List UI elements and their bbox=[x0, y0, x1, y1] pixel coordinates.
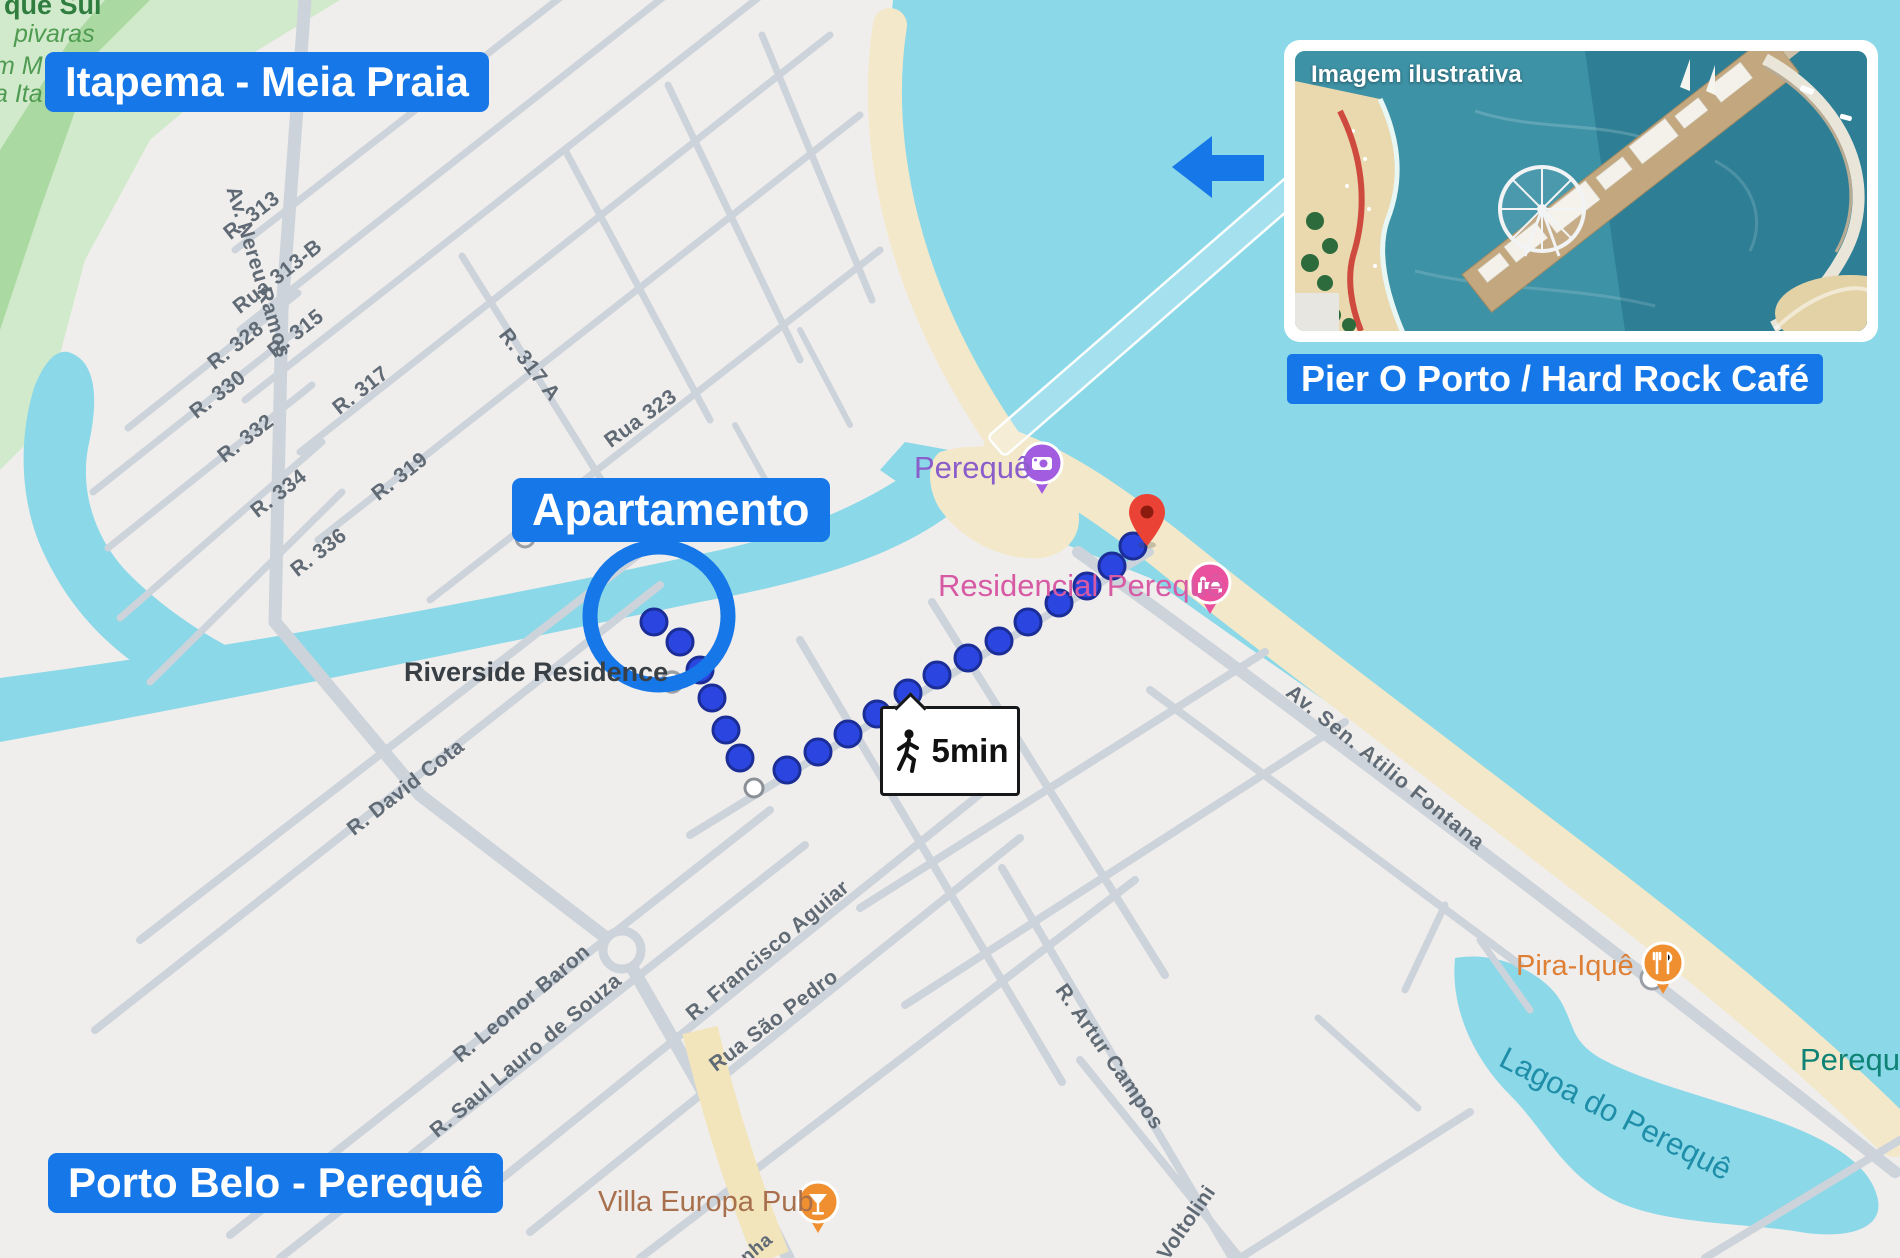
poi-residencial-pereque: Residencial Perequê bbox=[938, 568, 1224, 604]
label-itapema-meia-praia: Itapema - Meia Praia bbox=[45, 52, 489, 112]
poi-villa-europa-pub: Villa Europa Pub bbox=[598, 1186, 814, 1219]
route-waypoint-dot bbox=[745, 779, 763, 797]
poi-pereque-beach: Perequê bbox=[914, 450, 1031, 486]
poi-pereque-locality: Perequê bbox=[1800, 1042, 1900, 1078]
walking-duration: 5min bbox=[931, 732, 1008, 770]
destination-pin bbox=[1123, 491, 1171, 551]
inset-illustration-card: Imagem ilustrativa bbox=[1284, 40, 1878, 342]
walking-time-callout: 5min bbox=[880, 706, 1020, 796]
label-porto-belo-pereque: Porto Belo - Perequê bbox=[48, 1153, 503, 1213]
walking-person-icon bbox=[891, 728, 925, 774]
label-apartamento: Apartamento bbox=[512, 478, 830, 542]
park-label-1: que Sul bbox=[4, 0, 102, 21]
roundabout bbox=[603, 931, 641, 969]
inset-caption: Imagem ilustrativa bbox=[1311, 61, 1522, 89]
park-label-2: pivaras bbox=[14, 20, 95, 49]
label-pier-o-porto-hard-rock: Pier O Porto / Hard Rock Café bbox=[1287, 354, 1823, 404]
map-canvas: Imagem ilustrativa Itapema - Meia Praia … bbox=[0, 0, 1900, 1258]
park-label-4: a Ita bbox=[0, 80, 43, 109]
poi-pira-ique: Pira-Iquê bbox=[1516, 950, 1634, 983]
park-label-3: m M bbox=[0, 52, 43, 81]
camera-icon bbox=[1032, 457, 1052, 470]
pier-aerial-photo: Imagem ilustrativa bbox=[1295, 51, 1867, 331]
poi-riverside-residence: Riverside Residence bbox=[404, 657, 668, 688]
restaurant-pin bbox=[1639, 940, 1687, 998]
pier-photo-graphic bbox=[1295, 51, 1867, 331]
